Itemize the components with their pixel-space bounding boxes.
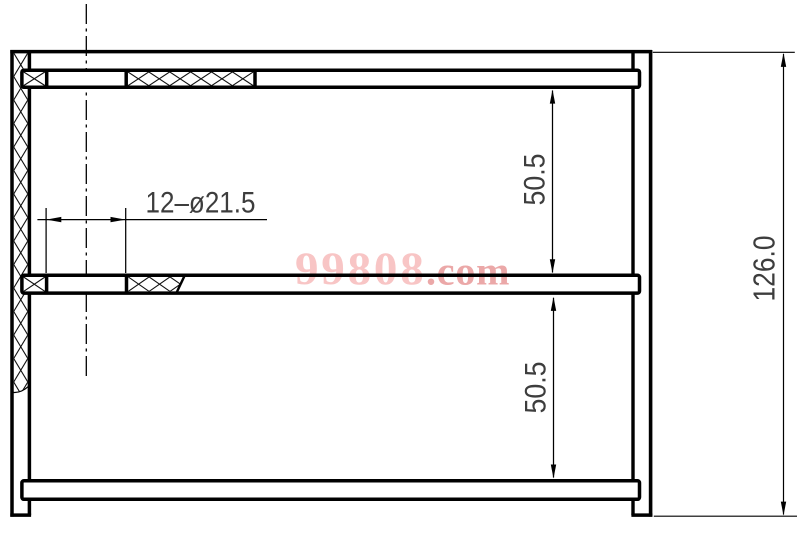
svg-text:50.5: 50.5	[520, 362, 553, 414]
svg-text:126.0: 126.0	[747, 236, 782, 302]
svg-text:.com: .com	[426, 249, 510, 294]
svg-text:50.5: 50.5	[519, 154, 552, 206]
svg-text:99808: 99808	[295, 243, 427, 295]
svg-text:12–ø21.5: 12–ø21.5	[146, 187, 256, 220]
